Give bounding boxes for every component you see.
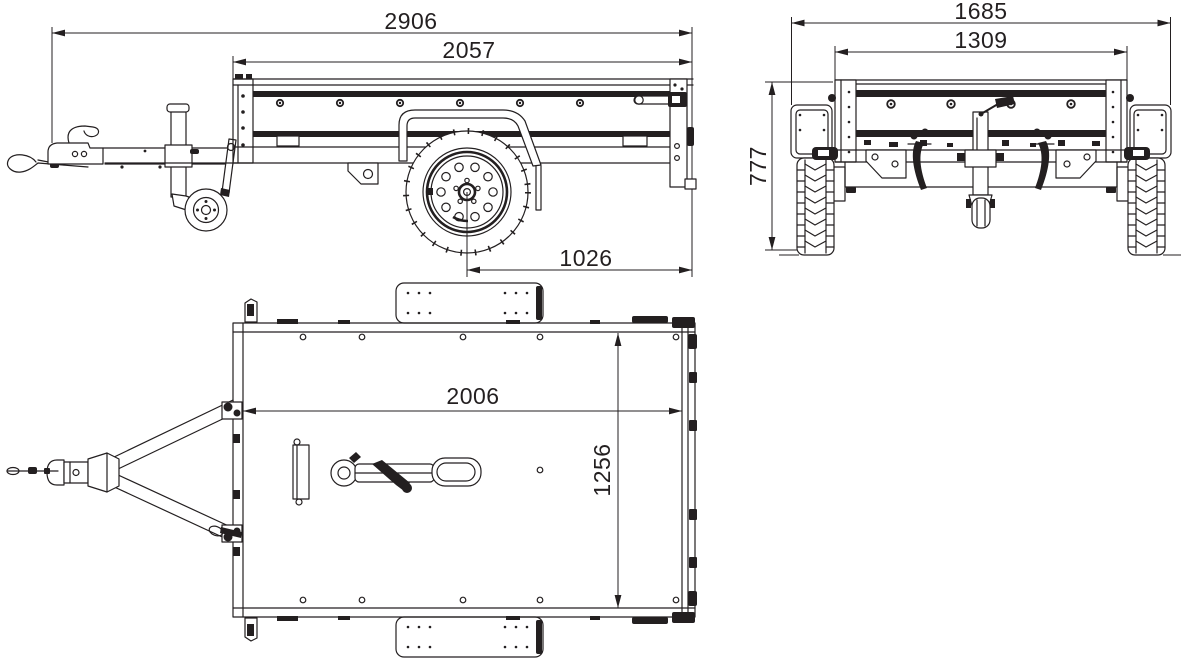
- extension-lines: [52, 27, 692, 277]
- jockey-wheel-folded: [331, 452, 481, 493]
- dim-inner-length: 2006: [446, 383, 499, 409]
- gusset-left: [866, 150, 906, 178]
- technical-drawing-canvas: 2906 2057 1026: [0, 0, 1182, 667]
- tailgate-hinges: [688, 334, 697, 606]
- wheel-left-rear: [797, 158, 834, 255]
- dim-inner-width: 1256: [589, 443, 615, 496]
- side-view: 2906 2057 1026: [8, 8, 696, 277]
- rear-view: 1685 1309 777: [745, 0, 1181, 255]
- jockey-wheel: [165, 104, 227, 231]
- dim-box-length: 2057: [442, 37, 495, 63]
- side-view-dimensions: 2906 2057 1026: [52, 8, 692, 277]
- dim-overall-length: 2906: [384, 8, 437, 34]
- coupler-top: [47, 453, 119, 492]
- wheel-right-rear: [1128, 158, 1165, 255]
- top-view: 2006 1256: [7, 283, 697, 657]
- dim-overall-height: 777: [745, 146, 771, 186]
- dim-overall-width: 1685: [954, 0, 1007, 24]
- rear-panel-bolts: [887, 100, 1075, 108]
- hitch-coupler: [48, 126, 103, 164]
- trailer-drawing-page: 2906 2057 1026: [0, 0, 1182, 667]
- trailer-rear-drawing: [791, 80, 1171, 255]
- dim-axle-to-rear: 1026: [559, 245, 612, 271]
- side-panel-bolts: [277, 100, 583, 106]
- tipping-lever-left: [908, 129, 931, 191]
- road-wheel-side: [406, 131, 528, 277]
- corner-lamp-brackets: [245, 299, 257, 641]
- fender-top: [396, 283, 543, 323]
- coupler-handle: [68, 126, 98, 143]
- a-frame-drawbar: [7, 400, 481, 542]
- dim-box-width: 1309: [954, 27, 1007, 53]
- mudflap: [536, 166, 541, 210]
- arrowheads: [52, 30, 692, 274]
- fender-bottom: [396, 617, 543, 657]
- gusset-right: [1056, 150, 1096, 178]
- cross-plate: [293, 439, 309, 505]
- tipping-lever-right: [1031, 129, 1054, 191]
- marker-lamp-left: [812, 147, 838, 160]
- marker-lamp-right: [1124, 147, 1150, 160]
